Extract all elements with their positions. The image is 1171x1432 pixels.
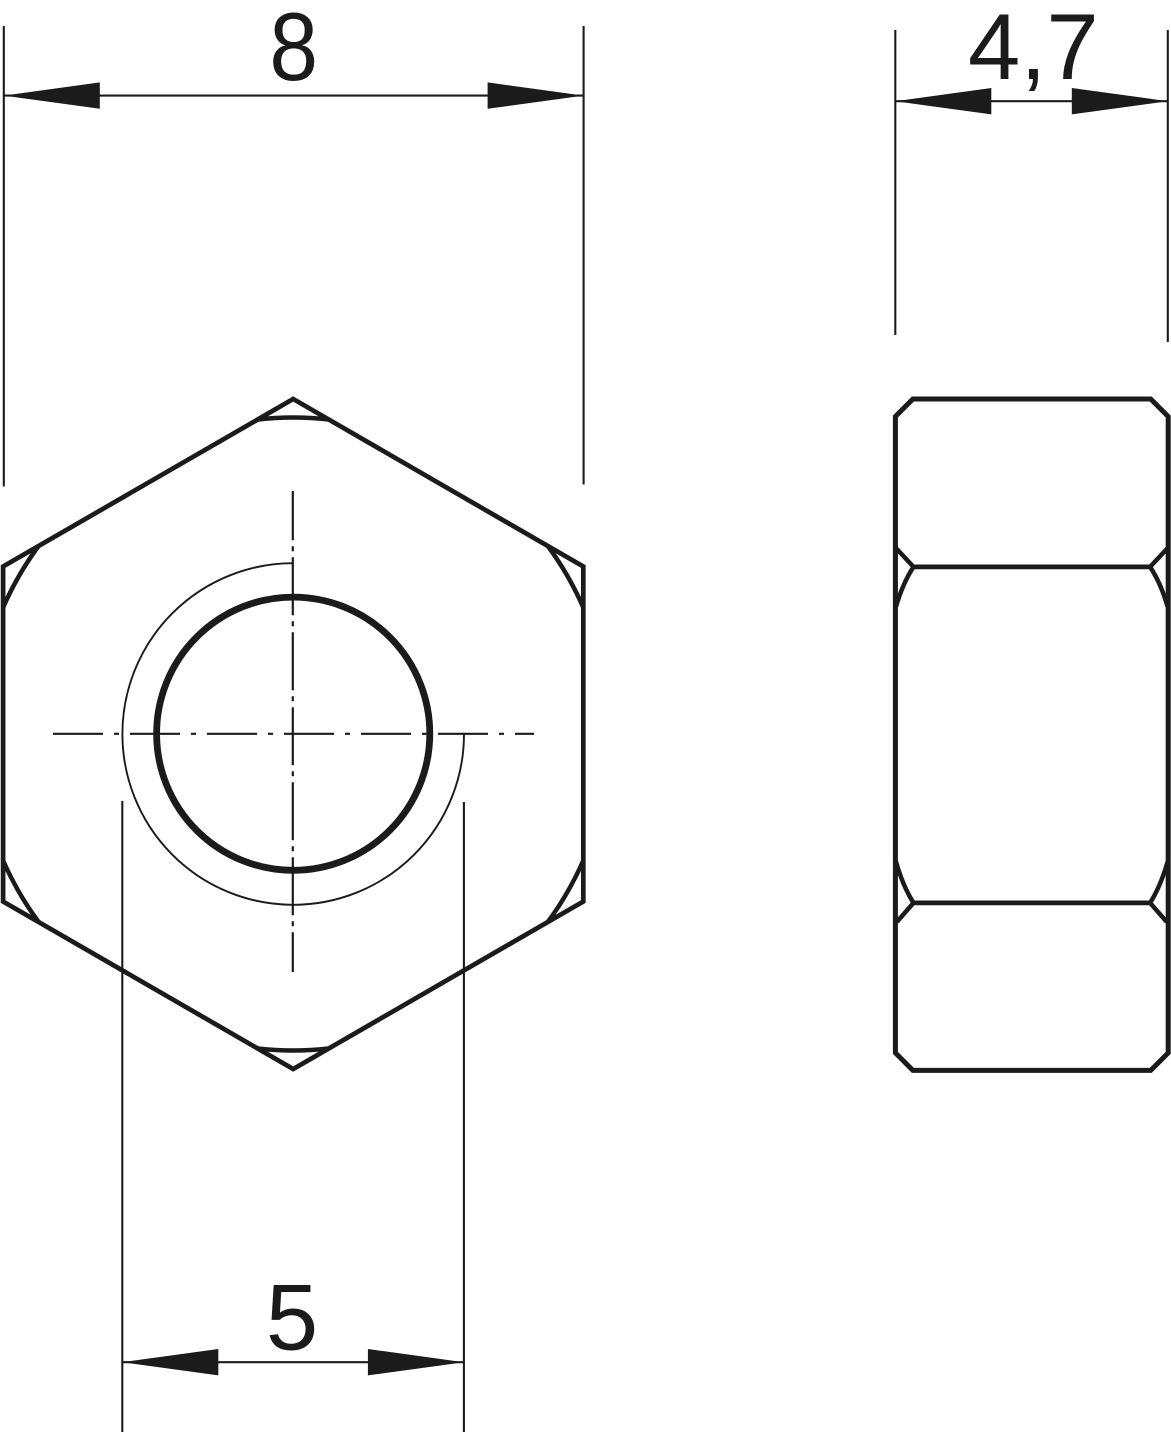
svg-text:8: 8 xyxy=(269,0,318,101)
svg-text:4,7: 4,7 xyxy=(968,0,1099,99)
svg-text:5: 5 xyxy=(266,1264,318,1369)
